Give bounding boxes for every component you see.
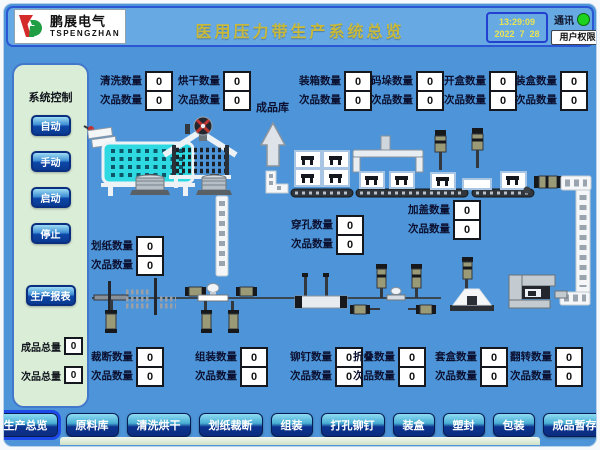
- defect-label: 次品数量: [435, 366, 477, 389]
- counter-value: 0: [240, 347, 268, 368]
- defect-label: 次品数量: [299, 90, 341, 113]
- product-boxes-grid: [295, 151, 349, 186]
- nav-bar: 生产总览原料库清洗烘干划纸裁断组装打孔铆钉装盒塑封包装成品暂存: [4, 410, 596, 440]
- nav-button-product-storage[interactable]: 成品暂存: [543, 413, 598, 437]
- gripper-crane: [353, 136, 423, 172]
- counter-value: 0: [555, 347, 583, 368]
- counter-value: 0: [560, 71, 588, 92]
- defect-value: 0: [489, 90, 517, 111]
- nav-button-box-loading[interactable]: 装盒: [393, 413, 435, 437]
- window-frame: 鹏展电气 TSPENGZHAN 医用压力带生产系统总览 13:29:092022…: [3, 3, 597, 447]
- defect-label: 次品数量: [178, 90, 220, 113]
- horizontal-cylinder: [524, 176, 563, 194]
- defect-value: 0: [223, 90, 251, 111]
- warehouse-arrow-icon: [261, 123, 285, 166]
- defect-label: 次品数量: [510, 366, 552, 389]
- counter-label: 划纸数量: [91, 236, 133, 257]
- counter-dry: 烘干数量0次品数量0: [178, 71, 251, 113]
- defect-value: 0: [344, 90, 372, 111]
- counter-label: 装盒数量: [515, 71, 557, 92]
- defect-label: 次品数量: [290, 366, 332, 389]
- defect-label: 次品数量: [91, 255, 133, 278]
- counter-value: 0: [416, 71, 444, 92]
- counter-wash: 清洗数量0次品数量0: [100, 71, 173, 113]
- counter-label: 铆钉数量: [290, 347, 332, 368]
- defect-value: 0: [136, 255, 164, 276]
- counter-flip: 翻转数量0次品数量0: [510, 347, 583, 389]
- defect-value: 0: [336, 234, 364, 255]
- defect-value: 0: [145, 90, 173, 111]
- counter-value: 0: [223, 71, 251, 92]
- assembly-station: [185, 284, 257, 334]
- counter-value: 0: [453, 200, 481, 221]
- defect-value: 0: [453, 219, 481, 240]
- nav-button-wash-dry[interactable]: 清洗烘干: [127, 413, 191, 437]
- nav-button-seal[interactable]: 塑封: [443, 413, 485, 437]
- defect-value: 0: [560, 90, 588, 111]
- counter-casing: 装盒数量0次品数量0: [515, 71, 588, 113]
- counter-value: 0: [344, 71, 372, 92]
- counter-label: 装箱数量: [299, 71, 341, 92]
- defect-label: 次品数量: [515, 90, 557, 113]
- rivet-press-station: [295, 273, 347, 308]
- defect-value: 0: [480, 366, 508, 387]
- counter-label: 穿孔数量: [291, 215, 333, 236]
- nav-button-overview[interactable]: 生产总览: [3, 413, 58, 437]
- counter-label: 开盒数量: [444, 71, 486, 92]
- defect-label: 次品数量: [91, 366, 133, 389]
- counter-fold: 折叠数量0次品数量0: [353, 347, 426, 389]
- counter-cap: 加盖数量0次品数量0: [408, 200, 481, 242]
- counter-label: 清洗数量: [100, 71, 142, 92]
- counter-punch: 穿孔数量0次品数量0: [291, 215, 364, 257]
- defect-value: 0: [240, 366, 268, 387]
- nav-button-material-store[interactable]: 原料库: [66, 413, 119, 437]
- counter-label: 裁断数量: [91, 347, 133, 368]
- counter-value: 0: [398, 347, 426, 368]
- counter-label: 折叠数量: [353, 347, 395, 368]
- counter-nest: 套盒数量0次品数量0: [435, 347, 508, 389]
- defect-label: 次品数量: [100, 90, 142, 113]
- defect-value: 0: [398, 366, 426, 387]
- defect-label: 次品数量: [353, 366, 395, 389]
- nav-button-assembly[interactable]: 组装: [271, 413, 313, 437]
- counter-value: 0: [136, 236, 164, 257]
- counter-value: 0: [145, 71, 173, 92]
- defect-label: 次品数量: [371, 90, 413, 113]
- defect-label: 次品数量: [444, 90, 486, 113]
- counter-paper: 划纸数量0次品数量0: [91, 236, 164, 278]
- counter-label: 套盒数量: [435, 347, 477, 368]
- plant-area: 成品库 清洗数量0次品数量0烘干数量0次品数量0装箱数量0次品数量0码垛数量0次…: [4, 4, 596, 446]
- nesting-press-station: [450, 257, 494, 311]
- pneumatic-cylinders: [435, 128, 483, 170]
- counter-value: 0: [336, 215, 364, 236]
- defect-label: 次品数量: [291, 234, 333, 257]
- defect-label: 次品数量: [408, 219, 450, 242]
- right-belt-items: [431, 172, 526, 189]
- counter-boxing: 装箱数量0次品数量0: [299, 71, 372, 113]
- paper-cutting-station: [94, 278, 176, 333]
- counter-label: 加盖数量: [408, 200, 450, 221]
- counter-unbox: 开盒数量0次品数量0: [444, 71, 517, 113]
- counter-label: 组装数量: [195, 347, 237, 368]
- counter-label: 烘干数量: [178, 71, 220, 92]
- counter-label: 码垛数量: [371, 71, 413, 92]
- counter-palletize: 码垛数量0次品数量0: [371, 71, 444, 113]
- bottom-strip: [60, 437, 540, 445]
- nav-button-punch-rivet[interactable]: 打孔铆钉: [321, 413, 385, 437]
- defect-value: 0: [555, 366, 583, 387]
- corner-conveyor: [266, 171, 288, 193]
- nav-button-packaging[interactable]: 包装: [493, 413, 535, 437]
- warehouse-label: 成品库: [256, 99, 289, 115]
- defect-value: 0: [136, 366, 164, 387]
- counter-label: 翻转数量: [510, 347, 552, 368]
- counter-value: 0: [136, 347, 164, 368]
- right-conveyor: [560, 176, 591, 305]
- nav-button-paper-cut[interactable]: 划纸裁断: [199, 413, 263, 437]
- washer-motor: [130, 174, 170, 195]
- counter-cut: 裁断数量0次品数量0: [91, 347, 164, 389]
- vertical-conveyor: [216, 196, 228, 276]
- counter-value: 0: [489, 71, 517, 92]
- upper-conveyor-belts: [291, 189, 534, 197]
- defect-label: 次品数量: [195, 366, 237, 389]
- product-boxes-row: [360, 172, 414, 188]
- counter-assemble: 组装数量0次品数量0: [195, 347, 268, 389]
- defect-value: 0: [416, 90, 444, 111]
- counter-value: 0: [480, 347, 508, 368]
- hmi-screen: 鹏展电气 TSPENGZHAN 医用压力带生产系统总览 13:29:092022…: [0, 0, 600, 450]
- flipping-machine: [509, 275, 567, 308]
- folding-station: [350, 264, 436, 314]
